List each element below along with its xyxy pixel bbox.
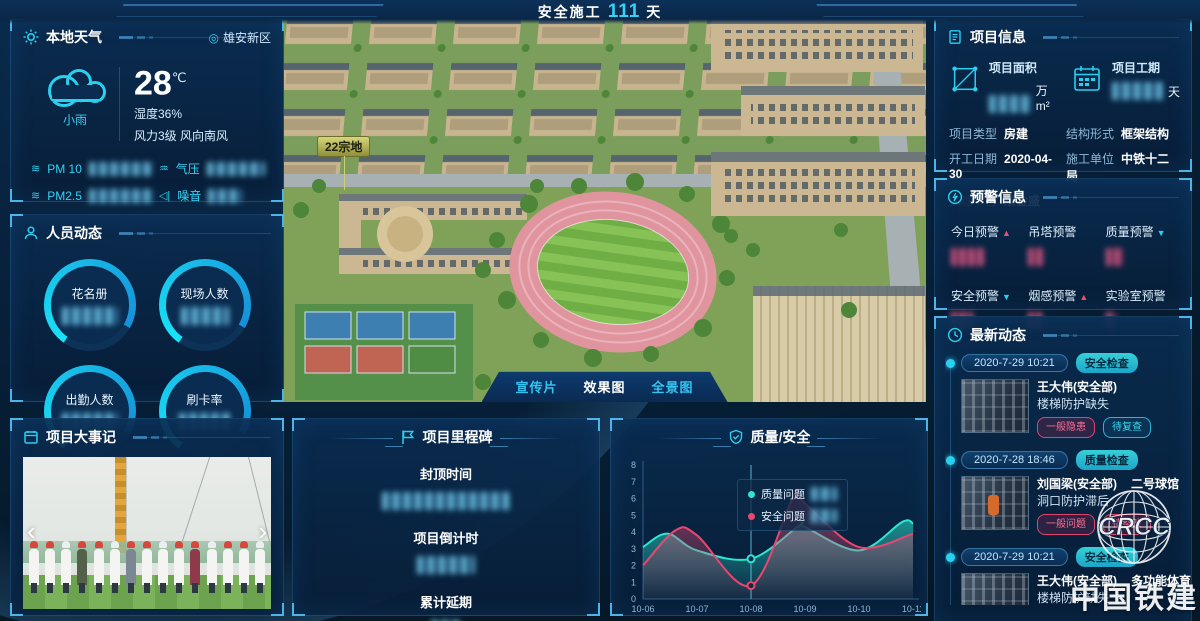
shield-check-icon xyxy=(728,429,744,445)
update-3-issue: 楼梯防护缺失 xyxy=(1037,590,1191,605)
land-parcel-tag: 22宗地 xyxy=(317,136,370,157)
warning-safety-label: 安全预警 xyxy=(951,289,999,303)
warning-crane-value-redacted xyxy=(1028,248,1044,266)
ring-swipe-rate-label: 刷卡率 xyxy=(186,391,222,408)
update-2-status-badge: 待整改 xyxy=(1103,514,1151,535)
milestone-photo: ‹ › xyxy=(23,457,271,609)
topping-time-label: 封顶时间 xyxy=(293,464,599,483)
crane-in-photo xyxy=(115,457,126,553)
noise-value-redacted xyxy=(208,189,242,203)
tab-promo-video[interactable]: 宣传片 xyxy=(515,377,557,396)
updates-panel: 最新动态 2020-7-29 10:21 安全检查 王大伟(安全部) 楼梯防护缺… xyxy=(934,316,1192,621)
update-2-person: 刘国梁(安全部) xyxy=(1037,476,1117,493)
warnings-panel: 预警信息 今日预警 吊塔预警 质量预警 安全预警 烟感预警 实验室预警 xyxy=(934,178,1192,310)
header-decoration-right xyxy=(816,4,1084,17)
update-1-photo[interactable] xyxy=(961,379,1029,433)
temperature-unit: ℃ xyxy=(172,70,187,85)
update-1-category: 安全检查 xyxy=(1076,353,1138,373)
update-1-issue: 楼梯防护缺失 xyxy=(1037,396,1151,413)
quality-safety-chart[interactable]: 01234567810-0610-0710-0810-0910-1010-11 … xyxy=(615,453,923,621)
project-type-value: 房建 xyxy=(1004,127,1028,141)
countdown-label: 项目倒计时 xyxy=(293,528,599,547)
update-1-status-badge: 待复查 xyxy=(1103,417,1151,438)
group-photo-people xyxy=(29,549,265,585)
pm10-label: PM 10 xyxy=(47,162,82,176)
warning-crane-label: 吊塔预警 xyxy=(1028,225,1076,239)
chart-tooltip: 质量问题 安全问题 xyxy=(737,479,848,531)
area-icon xyxy=(949,62,981,96)
duration-value-redacted xyxy=(1112,82,1164,100)
events-panel: 项目大事记 ‹ › xyxy=(10,418,284,616)
update-2-location: 二号球馆 xyxy=(1131,476,1179,493)
safe-days-value: 111 xyxy=(608,1,641,23)
location-name: 雄安新区 xyxy=(223,29,271,46)
update-3-photo[interactable] xyxy=(961,573,1029,605)
warning-smoke-label: 烟感预警 xyxy=(1028,289,1076,303)
ring-onsite: 现场人数 xyxy=(159,259,251,351)
personnel-panel: 人员动态 花名册 现场人数 出勤人数 刷卡率 xyxy=(10,214,284,402)
svg-text:1: 1 xyxy=(631,577,636,587)
header-decoration-left xyxy=(116,4,384,17)
ring-onsite-value-redacted xyxy=(181,307,229,325)
carousel-prev-arrow[interactable]: ‹ xyxy=(27,521,36,541)
temperature-value: 28 xyxy=(134,64,172,102)
structure-value: 框架结构 xyxy=(1121,127,1169,141)
weather-condition: 小雨 xyxy=(33,111,117,128)
update-item-1[interactable]: 2020-7-29 10:21 安全检查 王大伟(安全部) 楼梯防护缺失 一般隐… xyxy=(945,353,1191,450)
svg-text:8: 8 xyxy=(631,460,636,470)
warning-quality-value-redacted xyxy=(1106,248,1124,266)
update-1-time: 2020-7-29 10:21 xyxy=(961,354,1068,372)
svg-text:7: 7 xyxy=(631,477,636,487)
alert-bolt-icon xyxy=(947,189,963,205)
update-2-category: 质量检查 xyxy=(1076,450,1138,470)
document-icon xyxy=(947,29,963,45)
personnel-panel-title: 人员动态 xyxy=(46,223,102,243)
area-label: 项目面积 xyxy=(989,59,1060,76)
warning-quality-label: 质量预警 xyxy=(1106,225,1154,239)
svg-text:5: 5 xyxy=(631,510,636,520)
divider xyxy=(119,67,120,141)
project-type-label: 项目类型 xyxy=(949,127,997,141)
update-item-2[interactable]: 2020-7-28 18:46 质量检查 刘国梁(安全部)二号球馆 洞口防护滞后… xyxy=(945,450,1191,547)
flag-icon xyxy=(400,429,416,445)
svg-text:10-08: 10-08 xyxy=(739,604,762,614)
ring-roster-label: 花名册 xyxy=(71,285,107,302)
updates-title: 最新动态 xyxy=(970,325,1026,345)
calendar-icon xyxy=(1070,62,1104,96)
topping-time-value-redacted xyxy=(382,492,510,510)
area-unit: 万m² xyxy=(1036,82,1060,113)
update-item-3[interactable]: 2020-7-29 10:21 安全检查 王大伟(安全部)多功能体育馆 楼梯防护… xyxy=(945,547,1191,605)
quality-safety-title: 质量/安全 xyxy=(751,427,811,447)
update-1-person: 王大伟(安全部) xyxy=(1037,379,1117,396)
ring-onsite-label: 现场人数 xyxy=(180,285,228,302)
trend-down-icon xyxy=(1157,228,1166,238)
pressure-label: 气压 xyxy=(176,160,200,177)
project-info-panel: 项目信息 项目面积 万m² 项目工期 天 项目类型房建 结构形式框架结构 开工日… xyxy=(934,18,1192,172)
weather-panel: 本地天气 ◎ 雄安新区 '''' 小雨 28℃ 湿度36% 风力3级 风向南风 … xyxy=(10,18,284,202)
svg-text:3: 3 xyxy=(631,544,636,554)
pm25-label: PM2.5 xyxy=(47,189,82,203)
svg-text:4: 4 xyxy=(631,527,636,537)
site-3d-view[interactable]: 22宗地 宣传片 效果图 全景图 xyxy=(283,10,926,402)
dashboard: 安全施工 111 天 xyxy=(0,0,1200,621)
site-3d-render xyxy=(283,10,926,402)
pm10-icon: ≋ xyxy=(31,162,40,175)
pressure-value-redacted xyxy=(207,162,265,176)
svg-text:10-10: 10-10 xyxy=(847,604,870,614)
sun-icon xyxy=(23,29,39,45)
delay-label: 累计延期 xyxy=(293,592,599,611)
builder-label: 施工单位 xyxy=(1066,152,1114,166)
location-chip[interactable]: ◎ 雄安新区 xyxy=(209,29,272,46)
scene-tab-bar: 宣传片 效果图 全景图 xyxy=(481,371,727,402)
warning-today-value-redacted xyxy=(951,248,985,266)
tab-render-view[interactable]: 效果图 xyxy=(583,377,625,396)
warning-today-label: 今日预警 xyxy=(951,225,999,239)
ring-roster-value-redacted xyxy=(62,307,118,325)
tab-panorama[interactable]: 全景图 xyxy=(652,377,694,396)
quality-safety-panel: 质量/安全 01234567810-0610-0710-0810-0910-10… xyxy=(610,418,928,616)
svg-text:10-07: 10-07 xyxy=(685,604,708,614)
rain-cloud-icon xyxy=(46,69,104,99)
countdown-value-redacted xyxy=(417,556,475,574)
milestone-panel: 项目里程碑 封顶时间 项目倒计时 累计延期 xyxy=(292,418,600,616)
safety-series-label: 安全问题 xyxy=(761,508,805,524)
quality-series-dot xyxy=(748,491,755,498)
quality-series-label: 质量问题 xyxy=(761,486,805,502)
update-2-photo[interactable] xyxy=(961,476,1029,530)
pressure-icon: ♒ xyxy=(159,162,169,175)
structure-label: 结构形式 xyxy=(1066,127,1114,141)
noise-label: 噪音 xyxy=(177,187,201,204)
project-info-title: 项目信息 xyxy=(970,27,1026,47)
pm10-value-redacted xyxy=(89,162,153,176)
trend-down-icon xyxy=(1002,292,1011,302)
safe-days-label: 安全施工 xyxy=(538,2,602,22)
weather-panel-title: 本地天气 xyxy=(46,27,102,47)
warnings-title: 预警信息 xyxy=(970,187,1026,207)
update-1-severity-badge: 一般隐患 xyxy=(1037,417,1095,438)
update-3-location: 多功能体育馆 xyxy=(1131,573,1191,590)
noise-icon: ◁| xyxy=(159,189,170,202)
update-3-person: 王大伟(安全部) xyxy=(1037,573,1117,590)
events-panel-title: 项目大事记 xyxy=(46,427,116,447)
start-date-label: 开工日期 xyxy=(949,152,997,166)
safety-series-dot xyxy=(748,513,755,520)
wind-text: 风力3级 风向南风 xyxy=(134,127,228,144)
svg-text:6: 6 xyxy=(631,494,636,504)
svg-text:2: 2 xyxy=(631,561,636,571)
person-icon xyxy=(23,225,39,241)
pm25-icon: ≋ xyxy=(31,189,40,202)
update-2-issue: 洞口防护滞后 xyxy=(1037,493,1179,510)
pm25-value-redacted xyxy=(89,189,153,203)
duration-unit: 天 xyxy=(1168,83,1180,100)
trend-up-icon xyxy=(1002,228,1011,238)
top-header: 安全施工 111 天 xyxy=(0,0,1200,24)
carousel-next-arrow[interactable]: › xyxy=(258,521,267,541)
ring-roster: 花名册 xyxy=(44,259,136,351)
update-3-time: 2020-7-29 10:21 xyxy=(961,548,1068,566)
chart-svg: 01234567810-0610-0710-0810-0910-1010-11 xyxy=(615,453,921,619)
humidity-text: 湿度36% xyxy=(134,105,228,122)
location-pin-icon: ◎ xyxy=(209,31,219,45)
safety-series-value-redacted xyxy=(811,509,837,523)
ring-attendance-label: 出勤人数 xyxy=(65,391,113,408)
trend-up-icon xyxy=(1079,292,1088,302)
area-value-redacted xyxy=(989,95,1032,113)
update-2-severity-badge: 一般问题 xyxy=(1037,514,1095,535)
update-2-time: 2020-7-28 18:46 xyxy=(961,451,1068,469)
svg-text:10-06: 10-06 xyxy=(631,604,654,614)
quality-series-value-redacted xyxy=(811,487,837,501)
safe-days-unit: 天 xyxy=(646,2,662,22)
svg-text:10-09: 10-09 xyxy=(793,604,816,614)
svg-text:0: 0 xyxy=(631,594,636,604)
clock-icon xyxy=(947,327,963,343)
duration-label: 项目工期 xyxy=(1112,59,1180,76)
calendar-note-icon xyxy=(23,429,39,445)
milestone-panel-title: 项目里程碑 xyxy=(423,427,493,447)
warning-lab-label: 实验室预警 xyxy=(1106,289,1166,303)
update-3-category: 安全检查 xyxy=(1076,547,1138,567)
